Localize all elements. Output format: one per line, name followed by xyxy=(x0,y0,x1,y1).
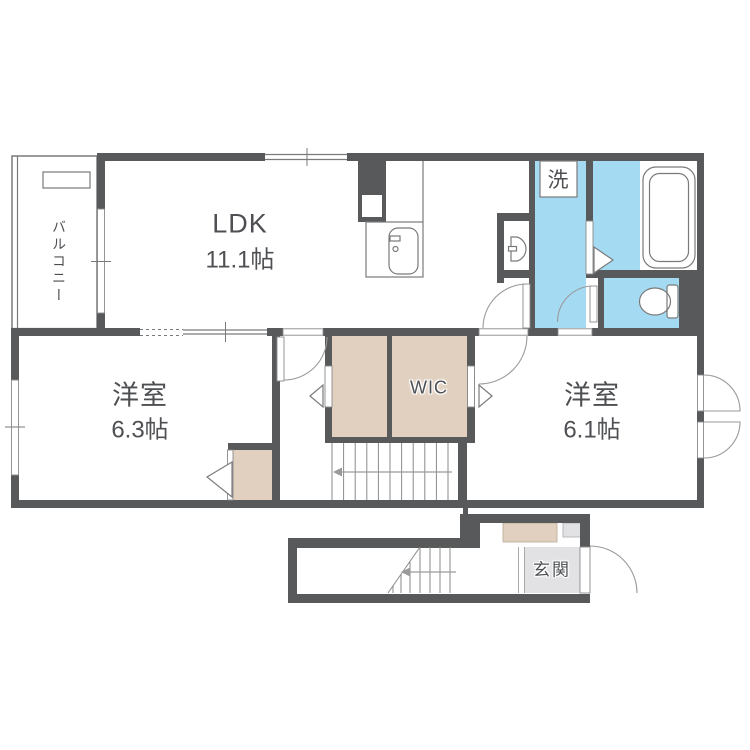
balcony-label: バルコニー xyxy=(49,220,69,305)
laundry-label: 洗 xyxy=(548,164,569,194)
stairs-lower xyxy=(388,547,456,593)
wic-east-folding-door xyxy=(468,366,493,407)
ldk-size-label: 11.1帖 xyxy=(206,240,275,275)
ldk-label: LDK xyxy=(212,209,268,240)
balcony-equipment xyxy=(43,172,90,188)
front-door xyxy=(580,546,637,593)
pipe-space xyxy=(362,195,382,217)
bedroom-east-door xyxy=(479,336,527,384)
ldk-bedroom-sliding-door xyxy=(140,322,267,342)
bedroom-west-label: 洋室 xyxy=(112,374,168,413)
hall-door xyxy=(479,284,530,335)
ldk-top-window xyxy=(265,148,347,166)
bedroom-east-size: 6.1帖 xyxy=(563,410,620,445)
entrance-label: 玄関 xyxy=(533,556,571,581)
bedroom-closet-floor xyxy=(233,450,272,500)
shoe-cabinet xyxy=(503,523,557,542)
kitchen-faucet xyxy=(390,236,400,241)
stairs-upper xyxy=(332,443,452,500)
closet-cell-floor xyxy=(332,336,387,437)
bathtub xyxy=(643,167,695,268)
wic-west-folding-door xyxy=(310,366,332,407)
bedroom-closet-folding-door xyxy=(207,450,233,500)
bedroom-east-label: 洋室 xyxy=(564,374,620,413)
floor-plan: LDK 11.1帖 洋室 6.3帖 洋室 6.1帖 WIC 洗 バルコニー 玄関 xyxy=(0,0,750,750)
ldk-door xyxy=(277,329,327,381)
entrance-storage xyxy=(563,523,582,537)
balcony-sliding-window xyxy=(91,209,111,313)
bedroom-west-size: 6.3帖 xyxy=(111,410,168,445)
washbasin xyxy=(509,237,527,261)
wic-label: WIC xyxy=(410,378,448,399)
bedroom-west-window xyxy=(5,380,25,475)
entrance-step xyxy=(519,547,525,593)
